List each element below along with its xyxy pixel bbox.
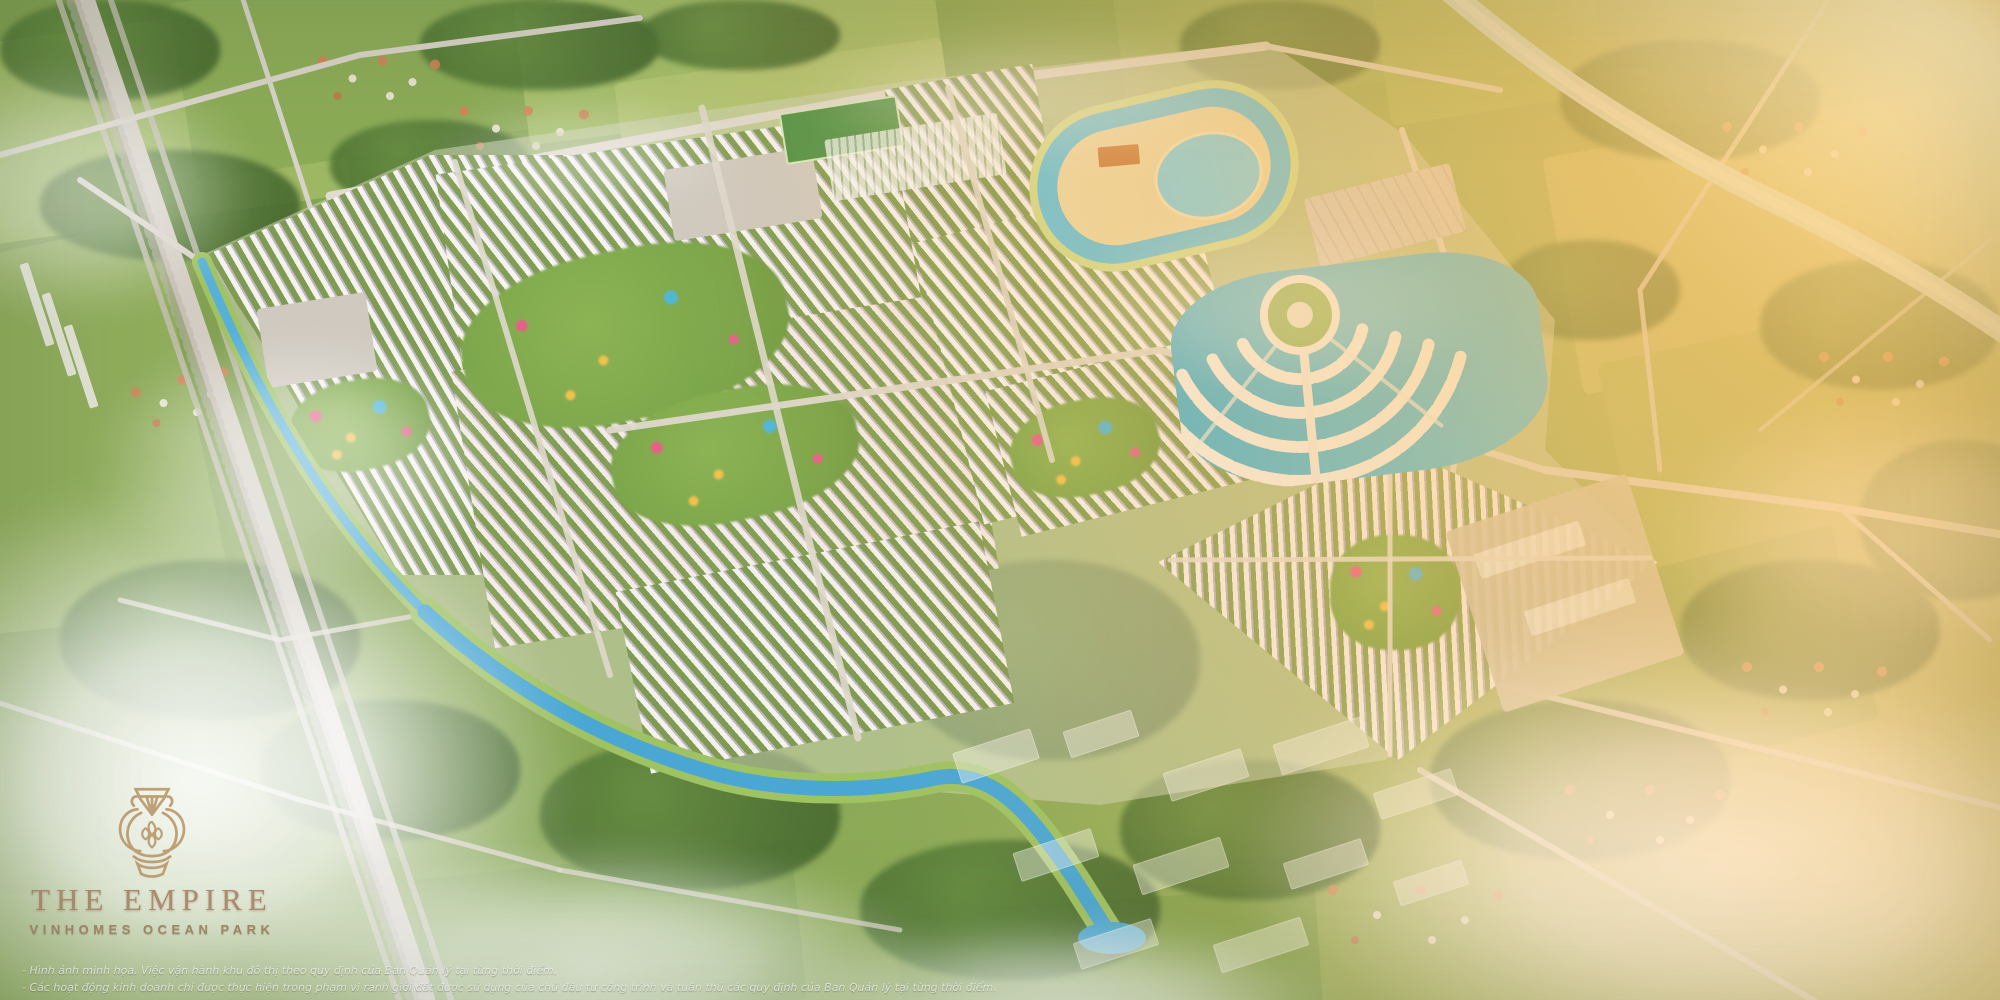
disclaimer-line-2: - Các hoạt động kinh doanh chỉ được thực… bbox=[22, 979, 1922, 996]
disclaimer-block: - Hình ảnh minh họa. Việc vận hành khu đ… bbox=[22, 962, 1922, 996]
project-logo: THE EMPIRE VINHOMES OCEAN PARK bbox=[2, 782, 302, 937]
project-subtitle: VINHOMES OCEAN PARK bbox=[2, 922, 302, 937]
project-title: THE EMPIRE bbox=[2, 882, 302, 918]
disclaimer-line-1: - Hình ảnh minh họa. Việc vận hành khu đ… bbox=[22, 962, 1922, 979]
empire-crest-icon bbox=[106, 782, 198, 882]
aerial-masterplan-render: THE EMPIRE VINHOMES OCEAN PARK - Hình ản… bbox=[0, 0, 2000, 1000]
